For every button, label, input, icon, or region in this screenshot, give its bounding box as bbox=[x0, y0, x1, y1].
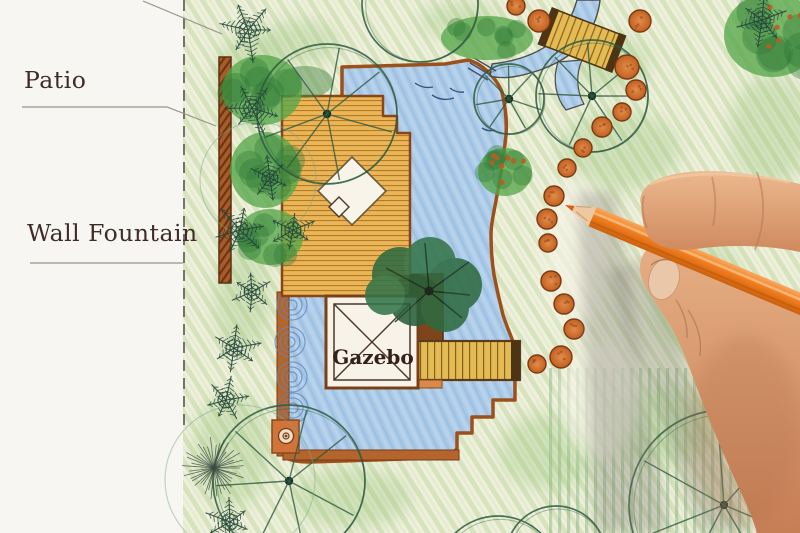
boardwalk-step bbox=[418, 380, 442, 388]
landscape-plan-photo: Gazebo bbox=[0, 0, 800, 533]
boardwalk-end-cap bbox=[511, 341, 520, 380]
index-finger bbox=[640, 171, 800, 252]
plan-drawing: Gazebo bbox=[0, 0, 800, 533]
palm-shading bbox=[690, 335, 800, 525]
wall-fountain-label: Wall Fountain bbox=[27, 219, 198, 247]
boardwalk bbox=[410, 341, 520, 380]
gazebo-label: Gazebo bbox=[332, 345, 413, 369]
patio-label: Patio bbox=[24, 66, 86, 94]
pump-box bbox=[272, 420, 299, 453]
